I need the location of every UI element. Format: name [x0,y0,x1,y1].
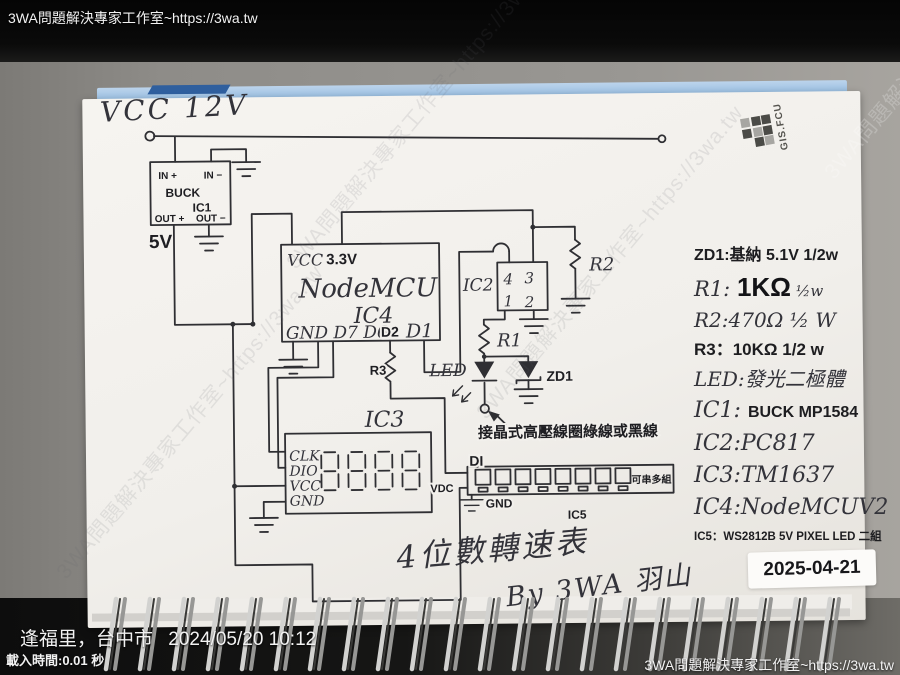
ic2-pin2: 2 [524,293,535,311]
ic3-pin-dio: DIO [288,463,318,479]
ic1-pin-in-minus: IN − [204,170,223,181]
ic4-33v-label: 3.3V [326,251,357,268]
ws2812-led-pad [539,487,548,491]
ic1-pin-in-plus: IN + [158,171,177,182]
ws2812-led-cell [535,469,550,484]
ws2812-led-cell [515,469,530,484]
location-datetime-overlay: 逢福里，台中市 2024/05/20 10:12 [20,624,316,651]
ic4-pin-d1: D1 [405,320,434,342]
r3-resistor [385,353,395,382]
ws2812-led-cell [475,470,490,485]
ws2812-led-cell [615,468,630,483]
ws2812-led-cell [555,469,570,484]
ws2812-led-pad [579,487,588,491]
seven-segment-digits [321,451,419,490]
ws2812-led-pad [599,486,608,490]
ic2-pin1: 1 [504,292,514,310]
ic1-name: BUCK [165,186,200,200]
ws2812-led-pad [619,486,628,490]
led-emission-arrow [453,386,463,396]
ic3-display-module: IC3 CLK DIO VCC GND [285,407,432,514]
photo-canvas: { "overlay": { "top_left": "3WA問題解決專家工作室… [0,0,900,675]
vcc-end-terminal [658,135,665,142]
ic3-ref: IC3 [364,407,405,432]
led-label: LED [428,361,467,381]
ic5-di-label: DI [469,453,483,469]
top-watermark-bar: 3WA問題解決專家工作室~https://3wa.tw [8,8,258,28]
ic4-gnd-d7-d6-pins: GND D7 D6 [286,323,388,344]
zd1-label: ZD1 [546,368,573,384]
ic5-gnd-label: GND [486,496,513,510]
ic2-ref: IC2 [462,276,494,296]
ic1-buck-module: IN + IN − BUCK IC1 OUT + OUT − 5V [148,161,231,253]
led-strip-cells [475,468,630,492]
ws2812-led-cell [495,469,510,484]
r1-resistor [479,325,489,354]
datetime-text: 2024/05/20 10:12 [168,629,316,650]
ic1-pin-out-minus: OUT − [196,213,226,224]
location-text: 逢福里，台中市 [20,629,153,650]
circuit-schematic: IN + IN − BUCK IC1 OUT + OUT − 5V VCC 3.… [0,0,900,675]
bottom-right-watermark: 3WA問題解決專家工作室~https://3wa.tw [644,655,894,675]
coil-note-text: 接晶式高壓線圈綠線或黑線 [478,422,658,442]
r2-resistor [570,240,580,269]
coil-connection-note: 接晶式高壓線圈綠線或黑線 [478,409,658,442]
ws2812-led-pad [479,488,488,492]
ic1-pin-out-plus: OUT + [155,214,185,225]
ic3-pin-gnd: GND [290,493,325,509]
load-time-overlay: 載入時間:0.01 秒 [6,650,104,669]
ic4-pin-d2: D2 [381,324,399,340]
ws2812-led-pad [499,487,508,491]
r3-label: R3 [370,363,387,378]
ic2-optocoupler: IC2 4 3 1 2 [462,262,548,312]
led-emission-arrow [462,393,471,402]
ic3-pin-vcc: VCC [289,478,321,494]
ic3-pin-clk: CLK [289,448,321,464]
ic5-ref: IC5 [568,508,587,522]
ws2812-led-pad [519,487,528,491]
ws2812-led-pad [559,487,568,491]
5v-label: 5V [149,232,173,253]
ws2812-led-cell [595,468,610,483]
ic2-pin4: 4 [502,270,513,288]
ic5-vdc-label: VDC [430,483,453,495]
ic2-pin3: 3 [524,269,534,287]
ws2812-led-cell [575,469,590,484]
ic5-chain-note: 可串多組 [631,473,671,486]
